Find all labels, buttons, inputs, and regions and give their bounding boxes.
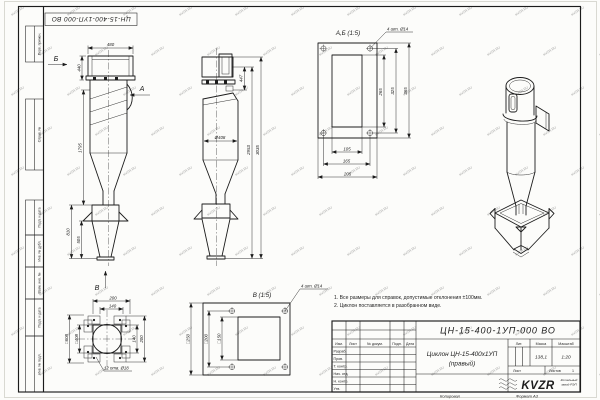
watermark-text: KVZR.RU [94,125,109,137]
flange-ab-view: А,Б (1:5) 4 шт. Ø14 265 325 365 105 165 … [318,27,413,180]
tb-row-razrab: Разраб. [334,349,347,353]
watermark-text: KVZR.RU [290,325,305,337]
watermark-text: KVZR.RU [290,85,305,97]
watermark-text: KVZR.RU [542,45,557,57]
watermark-text: KVZR.RU [318,125,333,137]
watermark-text: KVZR.RU [402,165,417,177]
watermark-text: KVZR.RU [486,45,501,57]
tb-copied: Копировал [440,394,461,399]
flange-v-view: В (1:5) 4 шт. Ø14 □250 □200 □150 [186,284,329,376]
watermark-text: KVZR.RU [150,125,165,137]
watermark-text: KVZR.RU [486,365,501,377]
dim-505: 505 [76,236,81,244]
tb-format: Формат А3 [516,394,539,399]
watermark-text: KVZR.RU [570,165,585,177]
watermark-text: KVZR.RU [234,165,249,177]
watermark-text: KVZR.RU [234,325,249,337]
tb-name-line2: (правый) [449,360,475,368]
dim-1795: 1795 [78,143,83,153]
technical-notes: 1. Все размеры для справок, допустимые о… [334,295,482,309]
watermark-text: KVZR.RU [290,165,305,177]
callout-12-holes: 12 отв. Ø18 [104,366,129,371]
logo-caption-1: Котельный [561,378,578,382]
watermark-text: KVZR.RU [178,245,193,257]
watermark-text: KVZR.RU [318,205,333,217]
callout-4-holes-v: 4 шт. Ø14 [301,284,323,289]
section-view: Ø408 447 2953 3035 [194,48,263,266]
dim-265: 265 [378,88,383,97]
tb-col-podp: Подп. [392,342,402,346]
watermark-text: KVZR.RU [66,165,81,177]
watermark-text: KVZR.RU [66,245,81,257]
watermark-text: KVZR.RU [150,205,165,217]
watermark-text: KVZR.RU [318,365,333,377]
watermark-text: KVZR.RU [262,125,277,137]
watermark-text: KVZR.RU [66,85,81,97]
watermark-text: KVZR.RU [234,85,249,97]
title-block: Изм. Лист № докум. Подп. Дата Разраб. Пр… [332,321,580,399]
watermark-text: KVZR.RU [458,85,473,97]
tb-name-line1: Циклон ЦН-15-400х1УП [427,351,498,358]
watermark-text: KVZR.RU [262,205,277,217]
watermark-text: KVZR.RU [570,245,585,257]
watermark-text: KVZR.RU [150,285,165,297]
iso-3d-view [490,78,554,258]
view-label-v: В [95,283,100,292]
watermark-text: KVZR.RU [206,285,221,297]
dim-2953: 2953 [246,145,251,156]
strip-label: Инв. № дубл. [38,240,42,261]
strip-label: Подп. и дата [38,307,42,327]
watermark-text: KVZR.RU [206,205,221,217]
margin-strip-vzam-inv: Взам. инв. № [26,267,44,299]
margin-strip-inv-podl: Инв. № подл. [26,336,44,392]
margin-strip-podp-data-1: Подп. и дата [26,200,44,235]
tb-sheets-value: 1 [572,369,574,373]
kvzr-logo: KVZR Котельный завод РЭП [499,378,578,392]
watermark-text: KVZR.RU [346,85,361,97]
dim-sq150: □150 [217,333,222,344]
margin-strip-podp-data-2: Подп. и дата [26,299,44,336]
callout-4-holes-ab: 4 шт. Ø14 [387,27,409,32]
watermark-text: KVZR.RU [178,85,193,97]
logo-text: KVZR [521,380,555,392]
tb-row-nachotd: Нач. отд. [334,372,349,376]
watermark-text: KVZR.RU [290,245,305,257]
tb-row-nkontr: Н. контр. [334,379,349,383]
watermark-text: KVZR.RU [150,45,165,57]
dim-sq408: □408 [74,333,79,344]
note-2: 2. Циклон поставляется в разобранном вид… [334,303,441,309]
dim-sq200: □200 [204,333,209,344]
drawing-canvas: KVZR.RUKVZR.RUKVZR.RUKVZR.RUKVZR.RUKVZR.… [0,0,600,400]
tb-sheets-label: Листов [549,369,561,373]
tb-sheet-label: Лист [513,369,521,373]
watermark-text: KVZR.RU [346,245,361,257]
logo-caption-2: завод РЭП [560,383,577,387]
tb-row-tkontr: Т. контр. [334,364,348,368]
watermark-text: KVZR.RU [430,205,445,217]
watermark-text: KVZR.RU [570,325,585,337]
watermark-text: KVZR.RU [374,205,389,217]
dim-480: 480 [107,42,115,47]
dim-base-140-top: 140 [109,304,117,309]
watermark-text: KVZR.RU [318,45,333,57]
view-label-b: Б [54,54,59,63]
dim-sq608: □608 [64,333,69,344]
watermark-text: KVZR.RU [234,245,249,257]
dim-810: 810 [66,228,71,236]
watermark-text: KVZR.RU [430,125,445,137]
margin-strip-inv-dubl: Инв. № дубл. [26,235,44,267]
watermark-text: KVZR.RU [94,205,109,217]
watermark-text: KVZR.RU [430,365,445,377]
flange-v-title: В (1:5) [253,292,272,299]
dim-165: 165 [343,159,351,164]
dim-325: 325 [390,87,395,95]
dim-205: 205 [343,172,352,177]
watermark-text: KVZR.RU [542,125,557,137]
tb-col-izm: Изм. [335,342,343,346]
strip-label: Справ. № [38,126,42,142]
watermark-text: KVZR.RU [458,165,473,177]
watermark-text: KVZR.RU [542,285,557,297]
tb-scale-value: 1:20 [561,355,571,361]
watermark-text: KVZR.RU [178,165,193,177]
dim-105: 105 [343,147,351,152]
dim-base-200-top: 200 [108,296,117,301]
doc-number-top: ЦН-15-400-1УП-000 ВО [51,15,130,22]
drawing-sheet: KVZR.RUKVZR.RUKVZR.RUKVZR.RUKVZR.RUKVZR.… [0,0,600,400]
tb-scale-label: Масштаб [558,342,573,346]
tb-col-dokum: № докум. [367,342,383,346]
watermark-text: KVZR.RU [374,365,389,377]
tb-row-utv: Утв. [334,387,341,391]
dim-3035: 3035 [255,145,260,155]
dim-365: 365 [403,87,408,95]
watermark-text: KVZR.RU [122,245,137,257]
watermark-text: KVZR.RU [458,245,473,257]
watermark-text: KVZR.RU [570,85,585,97]
dim-d408: Ø408 [214,135,226,140]
flange-ab-title: А,Б (1:5) [335,30,360,37]
strip-label: Перв. примен. [38,33,42,56]
strip-label: Взам. инв. № [38,272,42,293]
watermark-text: KVZR.RU [262,45,277,57]
tb-doc-number: ЦН-15-400-1УП-000 ВО [440,326,556,336]
base-view: 200 140 140 200 □608 □408 12 отв. Ø18 [64,296,147,372]
strip-label: Инв. № подл. [38,353,42,374]
dim-447: 447 [239,74,244,82]
watermark-text: KVZR.RU [486,285,501,297]
tb-col-list: Лист [349,342,357,346]
watermark-text: KVZR.RU [430,45,445,57]
tb-col-data: Дата [406,342,414,346]
tb-row-prov: Пров. [334,357,344,361]
tb-lit-label: Лит. [516,342,523,346]
strip-label: Подп. и дата [38,207,42,227]
dim-sq250: □250 [186,333,191,344]
dim-base-200-right: 200 [139,335,144,344]
watermark-text: KVZR.RU [486,125,501,137]
tb-mass-label: Масса [536,342,547,346]
watermark-text: KVZR.RU [402,245,417,257]
watermark-text: KVZR.RU [122,165,137,177]
margin-strip-sprav-no: Справ. № [26,99,44,170]
tb-mass-value: 138,1 [535,355,547,361]
watermark-text: KVZR.RU [150,365,165,377]
view-label-a: А [139,84,145,93]
dim-440: 440 [77,64,82,72]
note-1: 1. Все размеры для справок, допустимые о… [334,295,482,301]
watermark-text: KVZR.RU [402,325,417,337]
dim-base-140-right: 140 [132,335,137,343]
watermark-text: KVZR.RU [346,325,361,337]
